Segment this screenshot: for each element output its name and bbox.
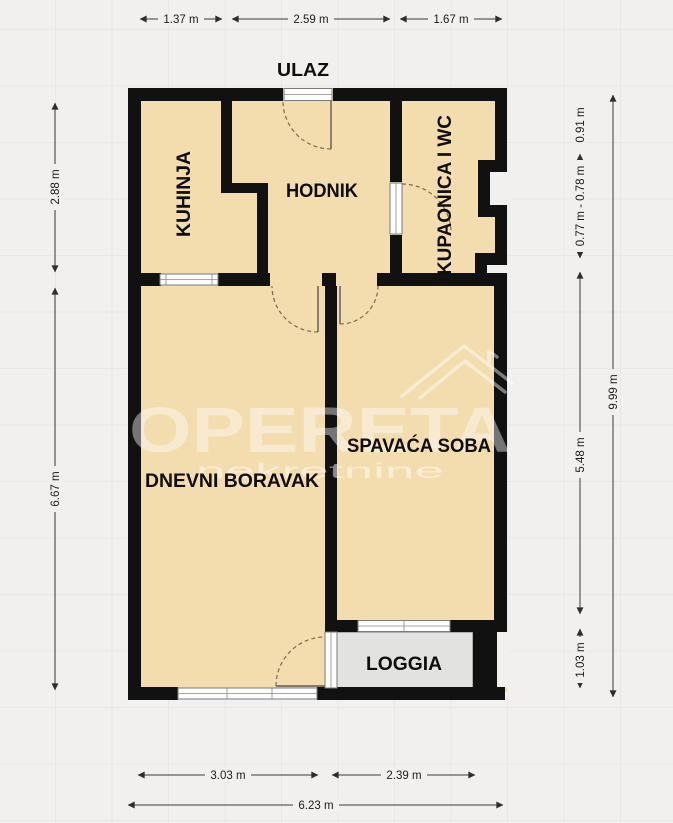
room-label-loggia: LOGGIA	[366, 654, 442, 675]
room-label-spavaca-soba: SPAVAĆA SOBA	[347, 435, 491, 457]
room-label-kuhinja: KUHINJA	[174, 151, 195, 237]
dim-top-kitchen: 1.37 m	[163, 14, 198, 26]
dim-right-091: 0.91 m	[575, 107, 587, 142]
dim-left-kitchen-depth: 2.88 m	[50, 169, 62, 204]
dim-right-total-height: 9.99 m	[608, 374, 620, 409]
entrance-label: ULAZ	[277, 60, 329, 80]
dim-bottom-total-width: 6.23 m	[298, 800, 333, 812]
dim-top-bathroom: 1.67 m	[433, 14, 468, 26]
dim-right-077-078: 0.77 m - 0.78 m	[575, 166, 587, 247]
room-label-kupaonica: KUPAONICA I WC	[435, 115, 456, 275]
facade-notch-lower	[487, 265, 509, 273]
floor-plan-canvas: OPERETA nekretnine ULAZ KUHINJA HODNIK K…	[0, 0, 673, 823]
facade-notch-upper	[490, 172, 512, 205]
room-label-dnevni-boravak: DNEVNI BORAVAK	[145, 471, 319, 492]
dim-right-loggia-depth: 1.03 m	[575, 642, 587, 677]
room-label-hodnik: HODNIK	[286, 181, 358, 202]
dim-right-bedroom-depth: 5.48 m	[575, 437, 587, 472]
facade-step-loggia	[497, 632, 509, 688]
dim-left-living-depth: 6.67 m	[50, 471, 62, 506]
floor-plan-svg: OPERETA nekretnine ULAZ KUHINJA HODNIK K…	[0, 0, 673, 823]
dim-top-hall: 2.59 m	[293, 14, 328, 26]
dim-bottom-loggia-width: 2.39 m	[386, 770, 421, 782]
dim-bottom-living-width: 3.03 m	[210, 770, 245, 782]
